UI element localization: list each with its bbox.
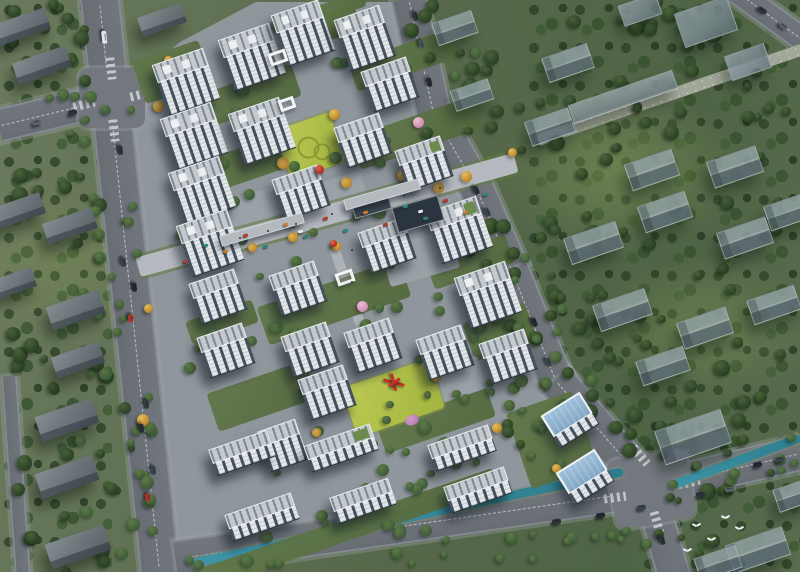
car xyxy=(418,39,424,49)
car xyxy=(117,145,122,154)
car xyxy=(426,77,432,87)
car xyxy=(774,456,784,462)
car xyxy=(752,461,762,467)
car xyxy=(143,399,148,408)
car xyxy=(145,493,150,501)
bird xyxy=(683,547,692,552)
car xyxy=(551,518,561,524)
car xyxy=(659,535,666,545)
car xyxy=(695,491,705,497)
bird xyxy=(707,536,716,541)
car xyxy=(530,317,538,327)
bird xyxy=(735,525,744,530)
car xyxy=(128,314,133,322)
car xyxy=(150,465,155,474)
car xyxy=(120,257,125,266)
car xyxy=(31,119,41,126)
bird xyxy=(692,522,701,527)
car xyxy=(757,6,767,15)
bus xyxy=(101,30,107,43)
car xyxy=(636,504,646,510)
car xyxy=(483,207,491,217)
car xyxy=(544,357,552,367)
car xyxy=(131,282,136,291)
car xyxy=(138,423,143,432)
vehicles-birds-layer xyxy=(0,0,800,572)
car xyxy=(724,486,734,492)
bird xyxy=(721,514,730,519)
car xyxy=(778,22,788,31)
car xyxy=(67,109,77,116)
aerial-masterplan-rendering xyxy=(0,0,800,572)
car xyxy=(472,185,480,195)
car xyxy=(412,11,418,21)
car xyxy=(595,512,605,518)
